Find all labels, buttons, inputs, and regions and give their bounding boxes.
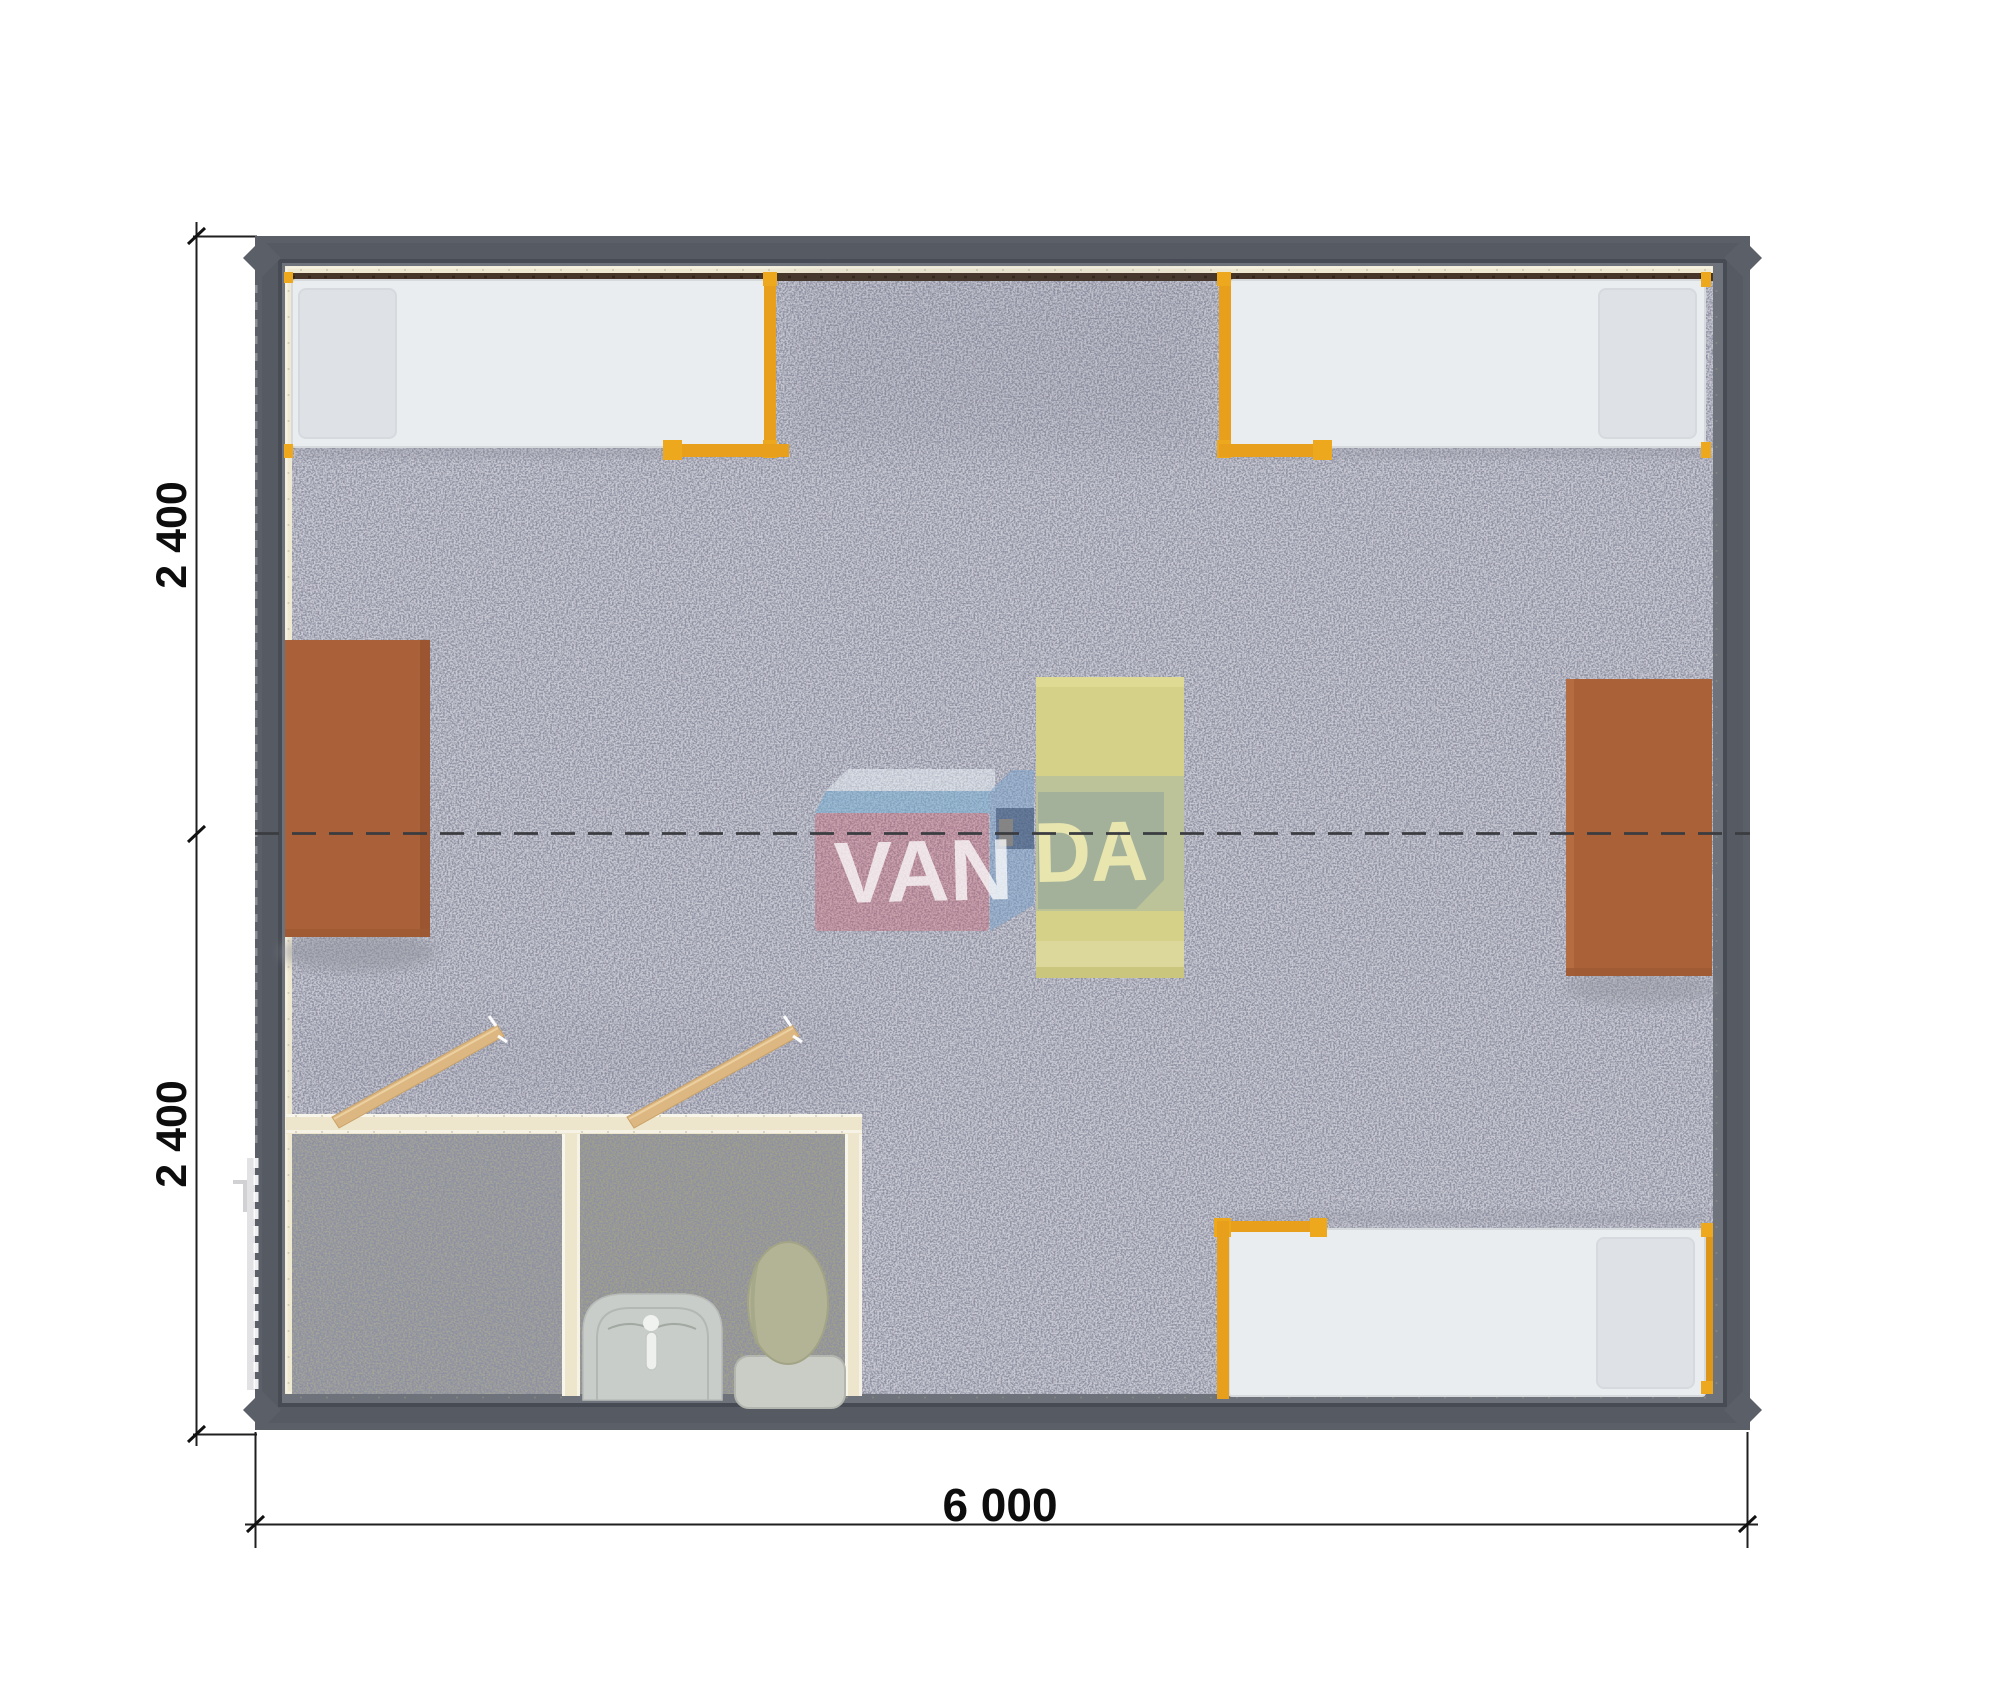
svg-text:2 400: 2 400 — [148, 481, 196, 589]
svg-text:VAN: VAN — [833, 821, 1014, 922]
svg-text:6 000: 6 000 — [942, 1479, 1057, 1531]
svg-text:DA: DA — [1033, 804, 1149, 901]
svg-text:2 400: 2 400 — [148, 1080, 196, 1188]
